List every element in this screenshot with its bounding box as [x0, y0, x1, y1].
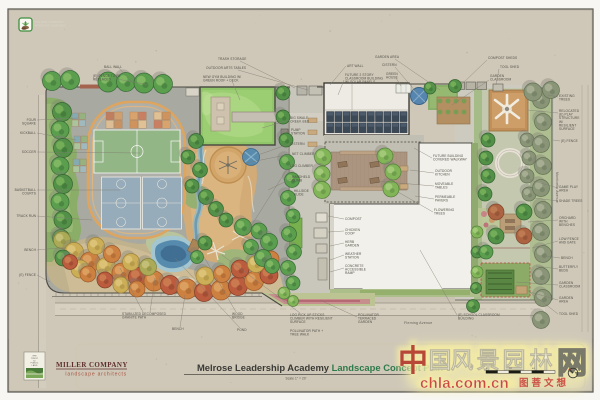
svg-text:Scale 1" = 20': Scale 1" = 20': [286, 377, 307, 381]
svg-text:园: 园: [503, 347, 526, 373]
svg-text:40': 40': [532, 368, 536, 370]
svg-text:风: 风: [451, 347, 474, 373]
svg-text:景: 景: [477, 347, 500, 373]
svg-text:landscape architects: landscape architects: [65, 372, 127, 378]
svg-text:国: 国: [429, 347, 452, 373]
svg-text:WORKSHOP COMPANIES: WORKSHOP COMPANIES: [35, 25, 66, 28]
svg-text:MILLER COMPANY: MILLER COMPANY: [56, 361, 128, 369]
svg-text:chla.com.cn: chla.com.cn: [420, 375, 509, 392]
svg-text:中: 中: [398, 345, 428, 378]
svg-text:20': 20': [509, 368, 513, 370]
svg-text:图菩文想: 图菩文想: [519, 377, 569, 389]
svg-text:网: 网: [557, 347, 587, 380]
